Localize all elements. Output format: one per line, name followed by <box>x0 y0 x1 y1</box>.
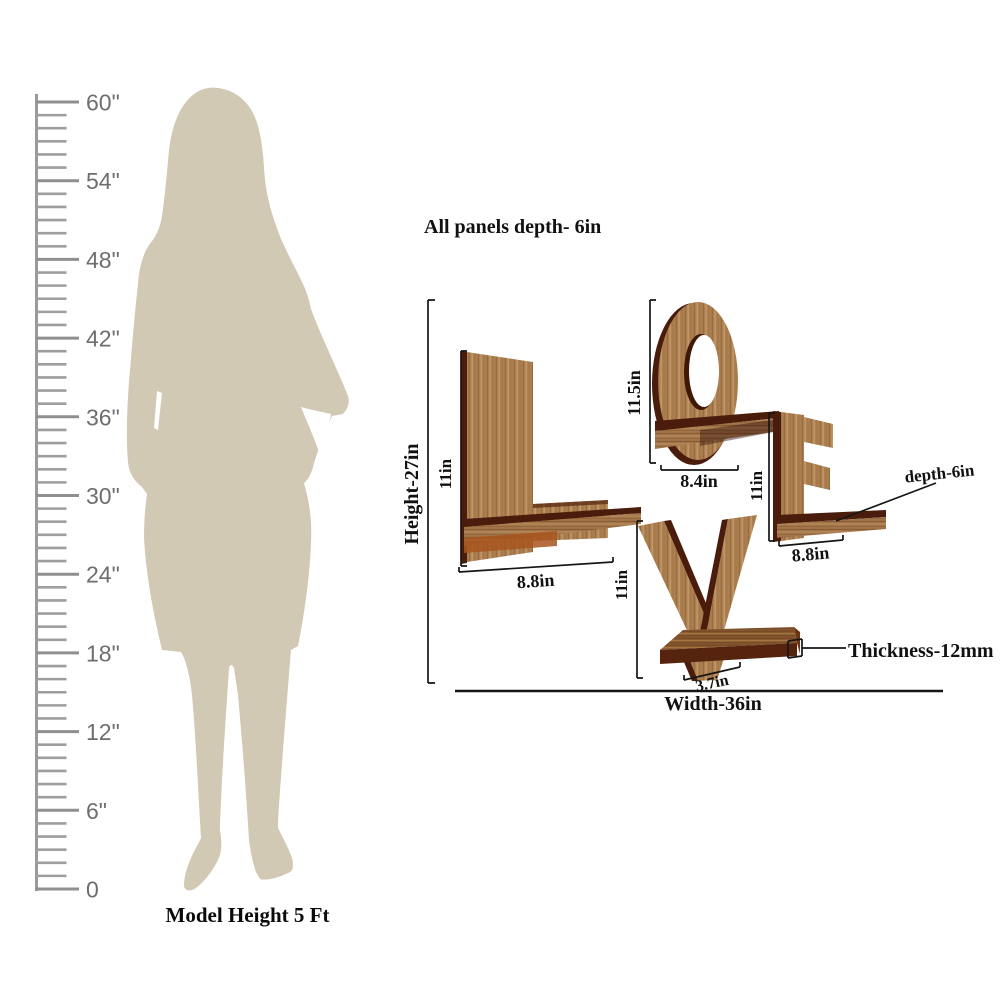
letter-o-hole <box>689 335 719 407</box>
ruler-label: 0 <box>86 877 99 903</box>
dim-overall-height-line <box>428 300 435 683</box>
ruler-label: 24" <box>86 562 120 588</box>
shelf-letter-o <box>652 302 779 465</box>
model-silhouette <box>127 88 349 891</box>
model-silhouette-body <box>127 88 349 891</box>
dim-o-width-line <box>661 465 738 470</box>
l-width-label: 8.8in <box>516 570 555 593</box>
love-shelf-diagram: All panels depth- 6in <box>400 195 1000 720</box>
shelf-letter-e <box>773 411 886 542</box>
o-width-label: 8.4in <box>680 471 718 491</box>
l-height-label: 11in <box>436 458 455 489</box>
e-width-label: 8.8in <box>791 542 830 565</box>
shelf-letter-l <box>461 351 641 564</box>
thickness-label: Thickness-12mm <box>848 640 994 662</box>
ruler-and-model-panel: 06"12"18"24"30"36"42"48"54"60" <box>0 0 400 1000</box>
e-height-label: 11in <box>747 470 766 501</box>
letter-e-top-arm <box>804 417 833 448</box>
ruler-label: 48" <box>86 247 120 273</box>
height-ruler: 06"12"18"24"30"36"42"48"54"60" <box>36 90 120 903</box>
ruler-label: 6" <box>86 798 107 824</box>
letter-e-mid-arm <box>804 461 830 490</box>
ruler-label: 12" <box>86 719 120 745</box>
ruler-label: 60" <box>86 90 120 116</box>
v-height-label: 11in <box>612 569 631 600</box>
ruler-label: 18" <box>86 640 120 666</box>
ruler-label: 30" <box>86 483 120 509</box>
dim-v-height-line <box>637 521 643 678</box>
ruler-label: 54" <box>86 168 120 194</box>
overall-width-label: Width-36in <box>664 693 761 715</box>
o-height-label: 11.5in <box>624 370 644 416</box>
overall-height-label: Height-27in <box>401 443 423 544</box>
panel-depth-note: All panels depth- 6in <box>424 216 601 238</box>
ruler-label: 36" <box>86 404 120 430</box>
ruler-label: 42" <box>86 326 120 352</box>
model-hair-slit <box>284 212 291 231</box>
depth-label: depth-6in <box>904 460 976 486</box>
model-height-caption: Model Height 5 Ft <box>115 903 380 928</box>
product-dimension-diagram: 06"12"18"24"30"36"42"48"54"60" Model Hei… <box>0 0 1000 1000</box>
